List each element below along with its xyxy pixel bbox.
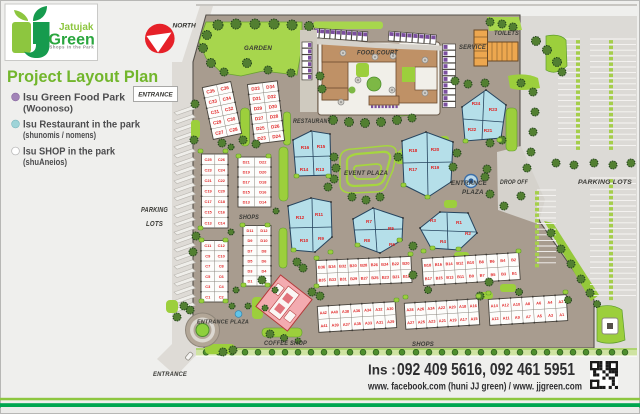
svg-text:C23: C23 <box>205 168 213 173</box>
svg-text:D29: D29 <box>253 106 262 112</box>
svg-text:R1: R1 <box>456 220 462 225</box>
svg-text:A37: A37 <box>343 322 350 327</box>
svg-text:A21: A21 <box>439 318 447 323</box>
svg-text:GARDEN: GARDEN <box>244 45 273 52</box>
svg-text:C11: C11 <box>204 243 212 248</box>
svg-text:B33: B33 <box>329 277 337 282</box>
svg-text:PARKING: PARKING <box>141 207 168 214</box>
svg-text:B30: B30 <box>349 263 356 268</box>
svg-text:R12: R12 <box>296 215 305 220</box>
svg-text:C20: C20 <box>218 189 225 194</box>
svg-text:A17: A17 <box>460 317 467 322</box>
svg-text:R14: R14 <box>300 167 309 172</box>
svg-text:D3: D3 <box>248 269 254 274</box>
svg-text:lns :: lns : <box>368 363 396 378</box>
svg-text:C3: C3 <box>205 284 211 289</box>
svg-text:D17: D17 <box>243 180 250 185</box>
svg-text:D14: D14 <box>259 200 267 205</box>
svg-text:B35: B35 <box>318 277 326 282</box>
svg-text:C25: C25 <box>205 157 213 162</box>
svg-text:R18: R18 <box>409 148 418 153</box>
svg-text:B18: B18 <box>424 262 432 267</box>
svg-text:A38: A38 <box>342 309 350 314</box>
svg-text:A25: A25 <box>418 319 426 324</box>
svg-text:R4: R4 <box>440 239 446 244</box>
svg-text:C18: C18 <box>218 199 226 204</box>
svg-text:C7: C7 <box>205 264 210 269</box>
svg-text:TOILETS: TOILETS <box>494 30 519 37</box>
svg-text:R6: R6 <box>389 242 395 247</box>
svg-text:D1: D1 <box>248 279 254 284</box>
svg-text:A35: A35 <box>354 321 362 326</box>
svg-text:D5: D5 <box>248 258 254 263</box>
svg-text:B27: B27 <box>361 275 368 280</box>
svg-text:R19: R19 <box>431 165 440 170</box>
svg-text:B31: B31 <box>340 276 348 281</box>
svg-text:D32: D32 <box>267 94 276 100</box>
svg-text:C5: C5 <box>205 274 211 279</box>
svg-text:A20: A20 <box>448 304 455 309</box>
svg-text:R21: R21 <box>484 128 493 133</box>
svg-text:R24: R24 <box>472 101 481 106</box>
svg-text:D16: D16 <box>259 190 267 195</box>
svg-text:B21: B21 <box>392 274 400 279</box>
svg-text:B24: B24 <box>381 261 389 266</box>
svg-text:A32: A32 <box>375 306 383 311</box>
svg-text:B13: B13 <box>446 274 454 279</box>
svg-text:R15: R15 <box>317 144 326 149</box>
svg-text:ENTRANCE PLAZA: ENTRANCE PLAZA <box>197 320 249 326</box>
svg-text:lsu Restaurant in the park: lsu Restaurant in the park <box>23 120 140 131</box>
svg-text:D34: D34 <box>266 84 275 90</box>
svg-text:R10: R10 <box>300 238 309 243</box>
svg-text:D15: D15 <box>243 190 251 195</box>
svg-text:D31: D31 <box>252 96 261 102</box>
svg-text:A36: A36 <box>353 308 361 313</box>
svg-text:A7: A7 <box>526 314 531 319</box>
svg-text:A23: A23 <box>428 318 436 323</box>
svg-text:D6: D6 <box>262 258 268 263</box>
svg-text:R3: R3 <box>430 218 436 223</box>
svg-text:D20: D20 <box>259 170 266 175</box>
svg-text:C16: C16 <box>218 210 226 215</box>
svg-text:C26: C26 <box>218 157 226 162</box>
svg-text:B36: B36 <box>318 264 326 269</box>
svg-text:A16: A16 <box>470 303 478 308</box>
svg-text:D24: D24 <box>272 133 281 139</box>
svg-text:C24: C24 <box>218 168 226 173</box>
svg-text:LOTS: LOTS <box>146 221 163 228</box>
svg-text:C10: C10 <box>218 254 225 259</box>
svg-text:www. facebook.com (huni JJ gre: www. facebook.com (huni JJ green) / www.… <box>367 381 582 393</box>
svg-text:B15: B15 <box>435 275 443 280</box>
svg-text:A15: A15 <box>470 316 478 321</box>
svg-text:A33: A33 <box>365 320 373 325</box>
svg-text:A39: A39 <box>331 322 339 327</box>
svg-text:R22: R22 <box>468 127 477 132</box>
svg-text:A18: A18 <box>459 304 467 309</box>
svg-text:A12: A12 <box>502 302 510 307</box>
svg-text:A10: A10 <box>513 302 520 307</box>
svg-text:C21: C21 <box>205 178 213 183</box>
svg-text:RESTAURANT: RESTAURANT <box>293 118 332 125</box>
svg-text:D9: D9 <box>248 238 254 243</box>
svg-text:lsu Green Food Park: lsu Green Food Park <box>23 93 125 104</box>
svg-text:A31: A31 <box>376 319 384 324</box>
svg-text:A26: A26 <box>417 306 425 311</box>
svg-text:ENTRANCE: ENTRANCE <box>153 371 187 378</box>
svg-text:D18: D18 <box>259 180 267 185</box>
svg-text:B25: B25 <box>371 275 379 280</box>
svg-text:C22: C22 <box>218 178 226 183</box>
svg-text:D33: D33 <box>251 86 260 92</box>
svg-text:D11: D11 <box>247 228 255 233</box>
svg-text:SERVICE: SERVICE <box>459 44 486 51</box>
svg-text:D4: D4 <box>262 269 268 274</box>
svg-text:ENTRANCE: ENTRANCE <box>451 180 488 187</box>
svg-text:B16: B16 <box>435 262 443 267</box>
svg-text:ENTRANCE: ENTRANCE <box>138 92 173 99</box>
svg-text:092 409 5616, 092 461 5951: 092 409 5616, 092 461 5951 <box>397 359 575 379</box>
svg-text:C4: C4 <box>219 284 225 289</box>
svg-text:D30: D30 <box>268 104 277 110</box>
svg-text:(shunomis / nomens): (shunomis / nomens) <box>23 130 96 141</box>
svg-text:R13: R13 <box>316 167 325 172</box>
svg-text:R23: R23 <box>489 107 498 112</box>
svg-text:A19: A19 <box>449 317 457 322</box>
svg-text:R7: R7 <box>366 219 372 224</box>
svg-text:B7: B7 <box>480 273 485 278</box>
svg-text:C8: C8 <box>219 264 225 269</box>
svg-text:R11: R11 <box>315 212 324 217</box>
svg-text:A28: A28 <box>406 307 414 312</box>
svg-text:A30: A30 <box>386 306 393 311</box>
svg-text:D10: D10 <box>260 238 267 243</box>
svg-text:B28: B28 <box>360 262 368 267</box>
svg-text:R9: R9 <box>318 236 324 241</box>
svg-text:EVENT PLAZA: EVENT PLAZA <box>344 170 388 177</box>
svg-text:(Woonoso): (Woonoso) <box>23 104 73 115</box>
svg-text:SHOPS: SHOPS <box>239 215 259 221</box>
svg-text:B32: B32 <box>339 263 347 268</box>
svg-text:(shuAneios): (shuAneios) <box>23 157 67 168</box>
svg-text:R16: R16 <box>301 145 310 150</box>
svg-text:PARKING LOTS: PARKING LOTS <box>578 179 632 186</box>
svg-text:B22: B22 <box>392 261 400 266</box>
svg-text:A34: A34 <box>364 307 372 312</box>
svg-text:C6: C6 <box>219 274 225 279</box>
svg-text:B20: B20 <box>402 261 409 266</box>
svg-text:D28: D28 <box>270 114 279 120</box>
svg-text:D27: D27 <box>255 115 264 121</box>
svg-text:D12: D12 <box>260 228 268 233</box>
svg-text:SHOPS: SHOPS <box>412 342 434 348</box>
svg-text:B12: B12 <box>456 260 464 265</box>
svg-text:D7: D7 <box>248 248 253 253</box>
svg-text:A11: A11 <box>503 315 511 320</box>
svg-text:B11: B11 <box>457 274 465 279</box>
svg-text:D8: D8 <box>262 248 268 253</box>
svg-text:B29: B29 <box>350 276 358 281</box>
svg-text:D26: D26 <box>271 124 280 130</box>
svg-text:Shops in the Park: Shops in the Park <box>50 45 95 50</box>
svg-text:B26: B26 <box>371 262 379 267</box>
svg-text:D21: D21 <box>243 160 251 165</box>
svg-text:R17: R17 <box>409 167 418 172</box>
svg-text:D22: D22 <box>259 160 267 165</box>
svg-text:C2: C2 <box>219 295 225 300</box>
svg-text:A24: A24 <box>427 305 435 310</box>
svg-text:DROP OFF: DROP OFF <box>500 179 529 186</box>
svg-text:A29: A29 <box>387 319 395 324</box>
svg-text:B10: B10 <box>467 260 474 265</box>
svg-text:D19: D19 <box>243 170 251 175</box>
svg-text:A22: A22 <box>438 305 446 310</box>
svg-text:D25: D25 <box>256 125 265 131</box>
svg-text:B23: B23 <box>382 274 390 279</box>
svg-text:COFFEE SHOP: COFFEE SHOP <box>264 340 307 347</box>
svg-text:C12: C12 <box>218 243 226 248</box>
svg-text:A42: A42 <box>320 310 328 315</box>
svg-text:A40: A40 <box>331 309 338 314</box>
svg-text:R20: R20 <box>431 147 440 152</box>
svg-text:C13: C13 <box>205 220 213 225</box>
svg-text:C17: C17 <box>205 199 212 204</box>
svg-text:FOOD COURT: FOOD COURT <box>357 50 399 57</box>
svg-text:A13: A13 <box>491 316 499 321</box>
svg-text:A14: A14 <box>491 303 499 308</box>
svg-text:lsu SHOP in the park: lsu SHOP in the park <box>23 147 115 158</box>
svg-text:C15: C15 <box>205 210 213 215</box>
svg-text:B17: B17 <box>425 276 432 281</box>
svg-text:Project Layout Plan: Project Layout Plan <box>7 68 158 86</box>
svg-text:C19: C19 <box>205 189 213 194</box>
svg-text:D13: D13 <box>243 200 251 205</box>
svg-text:R2: R2 <box>465 231 471 236</box>
svg-text:R5: R5 <box>388 226 394 231</box>
svg-text:B34: B34 <box>328 264 336 269</box>
svg-text:C9: C9 <box>205 254 211 259</box>
svg-text:PLAZA: PLAZA <box>462 189 484 196</box>
svg-text:C14: C14 <box>218 220 226 225</box>
svg-text:A41: A41 <box>320 323 328 328</box>
svg-text:B14: B14 <box>445 261 453 266</box>
svg-text:C1: C1 <box>205 295 211 300</box>
svg-text:NORTH: NORTH <box>173 23 197 30</box>
svg-text:A27: A27 <box>407 320 414 325</box>
svg-text:R8: R8 <box>364 238 370 243</box>
